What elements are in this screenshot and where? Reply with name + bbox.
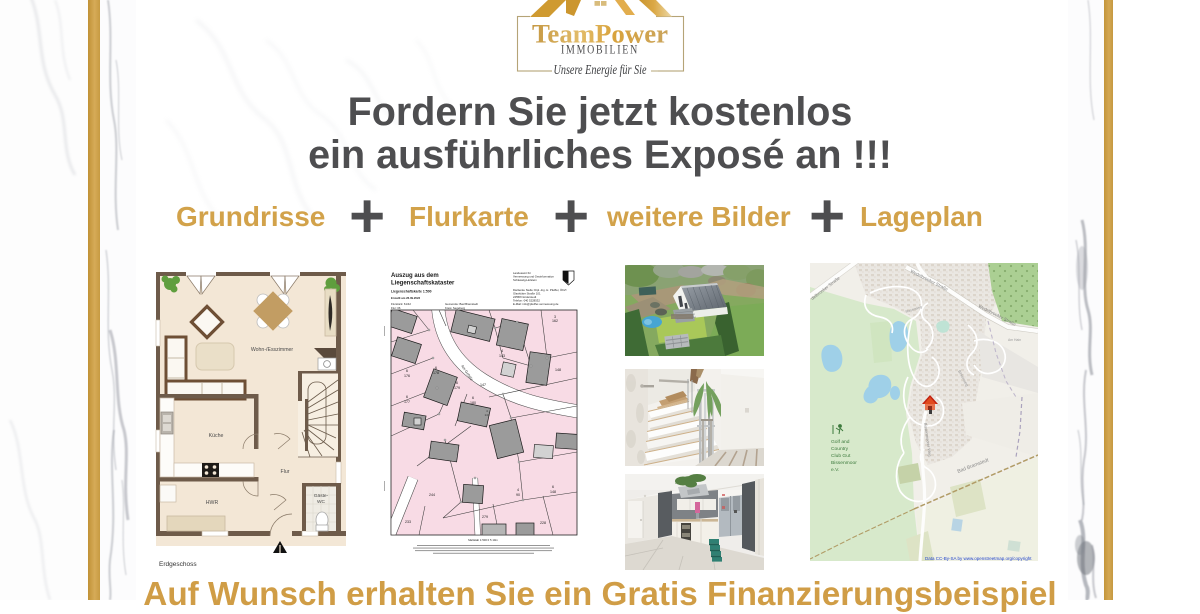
svg-text:148: 148 xyxy=(555,368,561,372)
svg-text:279: 279 xyxy=(482,515,488,519)
svg-text:233: 233 xyxy=(405,520,411,524)
svg-text:Club Gut: Club Gut xyxy=(831,453,851,459)
svg-text:Bissenmoor: Bissenmoor xyxy=(831,460,857,466)
svg-text:Kreis: Segeberg: Kreis: Segeberg xyxy=(445,306,466,310)
svg-text:Gäste-: Gäste- xyxy=(314,493,329,499)
svg-text:Wohn-/Esszimmer: Wohn-/Esszimmer xyxy=(251,347,294,353)
svg-text:4: 4 xyxy=(501,349,503,353)
svg-text:IMMOBILIEN: IMMOBILIEN xyxy=(561,43,639,57)
svg-text:148: 148 xyxy=(550,490,556,494)
svg-text:176: 176 xyxy=(404,374,410,378)
svg-text:143: 143 xyxy=(499,354,505,358)
svg-text:WC: WC xyxy=(317,499,326,505)
svg-text:Erstellt am 26.09.2023: Erstellt am 26.09.2023 xyxy=(391,296,421,300)
svg-text:Golf and: Golf and xyxy=(831,439,850,445)
svg-text:90: 90 xyxy=(516,493,520,497)
svg-text:178: 178 xyxy=(433,371,439,375)
svg-text:179: 179 xyxy=(454,386,460,390)
svg-text:228: 228 xyxy=(540,521,546,525)
svg-text:6: 6 xyxy=(406,395,408,399)
svg-text:Auszug aus dem: Auszug aus dem xyxy=(391,273,439,279)
svg-text:Country: Country xyxy=(831,446,849,452)
svg-text:180: 180 xyxy=(470,401,476,405)
svg-text:6: 6 xyxy=(552,485,554,489)
svg-text:HWR: HWR xyxy=(206,500,219,506)
svg-text:Schleswig-Holstein: Schleswig-Holstein xyxy=(513,278,537,282)
svg-text:Flur: Flur xyxy=(281,469,290,475)
svg-text:Liegenschaftskataster: Liegenschaftskataster xyxy=(391,281,455,287)
svg-text:147: 147 xyxy=(480,383,486,387)
svg-text:Am Hain: Am Hain xyxy=(1008,338,1021,342)
svg-text:6: 6 xyxy=(456,381,458,385)
svg-text:244: 244 xyxy=(429,493,435,497)
svg-text:177: 177 xyxy=(404,400,410,404)
svg-text:Maßstab 1:500 0 5 1: Maßstab 1:500 0 5 10m xyxy=(468,538,498,542)
svg-text:Liegenschaftskarte 1:500: Liegenschaftskarte 1:500 xyxy=(391,290,432,294)
svg-text:e.V.: e.V. xyxy=(831,467,839,473)
svg-text:162: 162 xyxy=(552,319,558,323)
svg-text:4: 4 xyxy=(517,488,519,492)
svg-text:6: 6 xyxy=(435,366,437,370)
svg-text:Unsere Energie für Sie: Unsere Energie für Sie xyxy=(554,62,647,77)
svg-text:Küche: Küche xyxy=(209,433,224,439)
svg-text:Erdgeschoss: Erdgeschoss xyxy=(159,561,197,568)
svg-text:Data CC-By-SA by www.openstree: Data CC-By-SA by www.openstreetmap.org/c… xyxy=(925,556,1032,561)
svg-text:6: 6 xyxy=(406,369,408,373)
svg-text:E-Mail: info@pfeiffer-vermessu: E-Mail: info@pfeiffer-vermessung.de xyxy=(513,302,559,306)
svg-text:6: 6 xyxy=(472,396,474,400)
svg-text:143: 143 xyxy=(484,413,489,417)
